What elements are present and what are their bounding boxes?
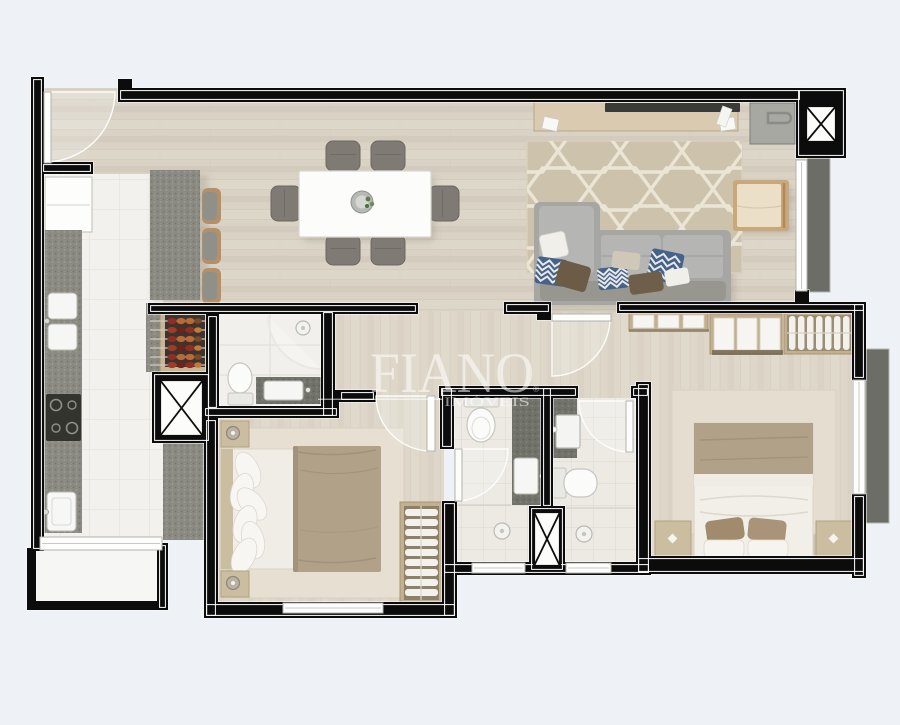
- svg-text:IMÓVEIS: IMÓVEIS: [444, 394, 530, 409]
- svg-text:®: ®: [533, 384, 540, 394]
